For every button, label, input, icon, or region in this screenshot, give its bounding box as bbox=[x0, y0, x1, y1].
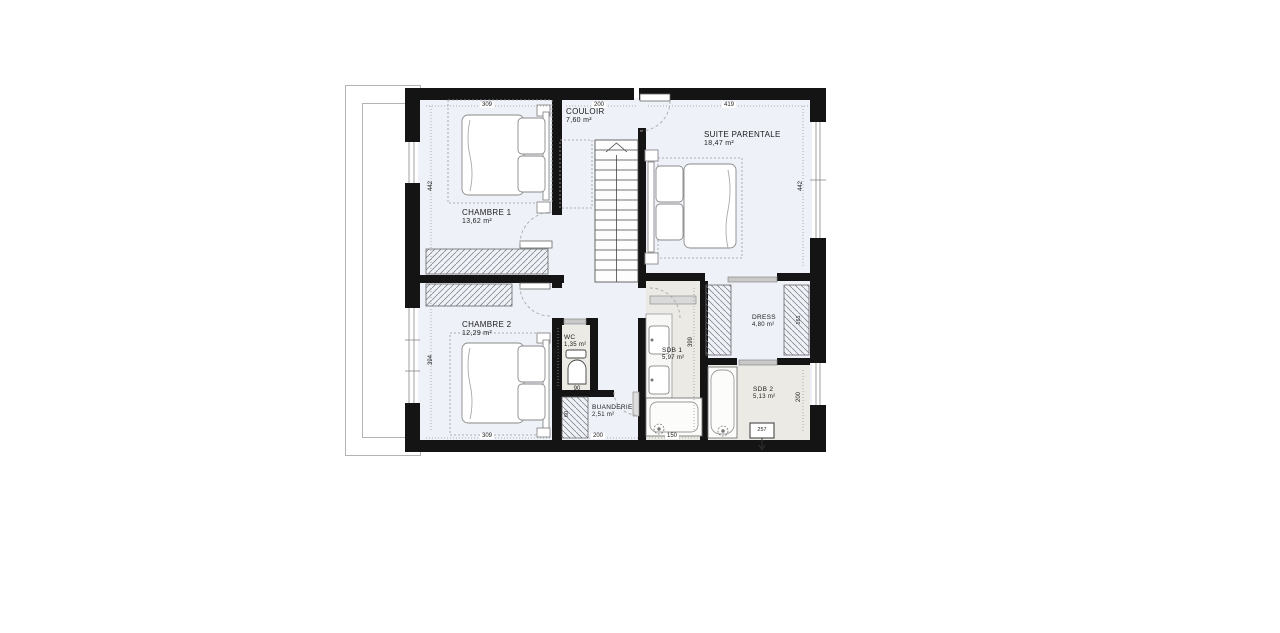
room-area: 1,35 m² bbox=[564, 342, 586, 349]
dim-sdb1-height: 399 bbox=[688, 337, 694, 347]
wall-top-right bbox=[639, 88, 826, 100]
room-area: 2,51 m² bbox=[592, 412, 633, 419]
wall-right-c bbox=[810, 405, 826, 452]
wall-sdb1-stub bbox=[638, 281, 646, 288]
room-label-couloir: COULOIR 7,60 m² bbox=[566, 107, 605, 125]
dim-buanderie-unit: 60 bbox=[564, 411, 570, 417]
room-label-wc: WC 1,35 m² bbox=[564, 334, 586, 349]
floor-plan: COULOIR 7,60 m² CHAMBRE 1 13,62 m² SUITE… bbox=[0, 0, 1280, 633]
room-name: SDB 1 bbox=[662, 347, 684, 355]
dim-wc-width: 90 bbox=[574, 386, 581, 392]
room-name: CHAMBRE 1 bbox=[462, 208, 511, 218]
room-label-suite: SUITE PARENTALE 18,47 m² bbox=[704, 130, 781, 148]
wall-bottom bbox=[405, 440, 826, 452]
wall-suite-bottom-a bbox=[638, 273, 705, 281]
room-label-sdb2: SDB 2 5,13 m² bbox=[753, 386, 775, 401]
room-area: 5,13 m² bbox=[753, 394, 775, 401]
room-name: BUANDERIE bbox=[592, 404, 633, 412]
wall-chambre1-couloir bbox=[552, 100, 562, 215]
dim-left-chambre2: 394 bbox=[428, 355, 434, 365]
dim-top-couloir: 200 bbox=[592, 102, 606, 108]
wall-buanderie-top bbox=[552, 390, 614, 397]
room-name: WC bbox=[564, 334, 586, 342]
room-area: 4,80 m² bbox=[752, 322, 776, 329]
room-name: SDB 2 bbox=[753, 386, 775, 394]
room-name: CHAMBRE 2 bbox=[462, 320, 511, 330]
dim-wc-height: 150 bbox=[554, 348, 560, 358]
wall-dress-sdb2-a bbox=[700, 358, 737, 365]
dim-bottom-chambre2: 309 bbox=[480, 433, 494, 439]
wall-wc-top-a bbox=[552, 318, 564, 325]
wall-suite-bottom-b bbox=[777, 273, 810, 281]
room-label-buanderie: BUANDERIE 2,51 m² bbox=[592, 404, 633, 419]
room-area: 18,47 m² bbox=[704, 140, 781, 148]
wall-right-b bbox=[810, 238, 826, 363]
room-label-chambre1: CHAMBRE 1 13,62 m² bbox=[462, 208, 511, 226]
dim-bottom-buanderie: 200 bbox=[591, 433, 605, 439]
dim-top-chambre1: 309 bbox=[480, 102, 494, 108]
dim-dress-wardrobe: 161 bbox=[796, 315, 802, 324]
wall-right-a bbox=[810, 88, 826, 122]
room-label-sdb1: SDB 1 5,97 m² bbox=[662, 347, 684, 362]
wall-stub-chambre2 bbox=[552, 283, 562, 288]
wall-hall-sdb1 bbox=[638, 318, 646, 440]
wall-chambre1-chambre2 bbox=[420, 275, 564, 283]
dim-bottom-sdb1: 150 bbox=[665, 433, 679, 439]
room-name: COULOIR bbox=[566, 107, 605, 117]
wall-top-left bbox=[405, 88, 634, 100]
dim-right-sdb2: 200 bbox=[796, 392, 802, 402]
wall-couloir-suite bbox=[638, 128, 646, 275]
room-area: 7,60 m² bbox=[566, 117, 605, 125]
room-area: 5,97 m² bbox=[662, 355, 684, 362]
wall-left-a bbox=[405, 88, 420, 142]
wall-left-b bbox=[405, 183, 420, 308]
room-area: 12,29 m² bbox=[462, 330, 511, 338]
wall-dress-sdb2-b bbox=[777, 358, 810, 365]
dim-left-chambre1: 442 bbox=[428, 181, 434, 191]
room-area: 13,62 m² bbox=[462, 218, 511, 226]
wall-wc-right bbox=[590, 318, 598, 392]
room-label-chambre2: CHAMBRE 2 12,29 m² bbox=[462, 320, 511, 338]
dim-top-suite: 419 bbox=[722, 102, 736, 108]
wall-left-c bbox=[405, 403, 420, 452]
dim-sdb2-fixture: 257 bbox=[757, 427, 766, 433]
room-name: DRESS bbox=[752, 314, 776, 322]
wall-wc-left bbox=[552, 318, 562, 440]
dim-right-suite: 442 bbox=[798, 181, 804, 191]
room-name: SUITE PARENTALE bbox=[704, 130, 781, 140]
room-label-dress: DRESS 4,80 m² bbox=[752, 314, 776, 329]
